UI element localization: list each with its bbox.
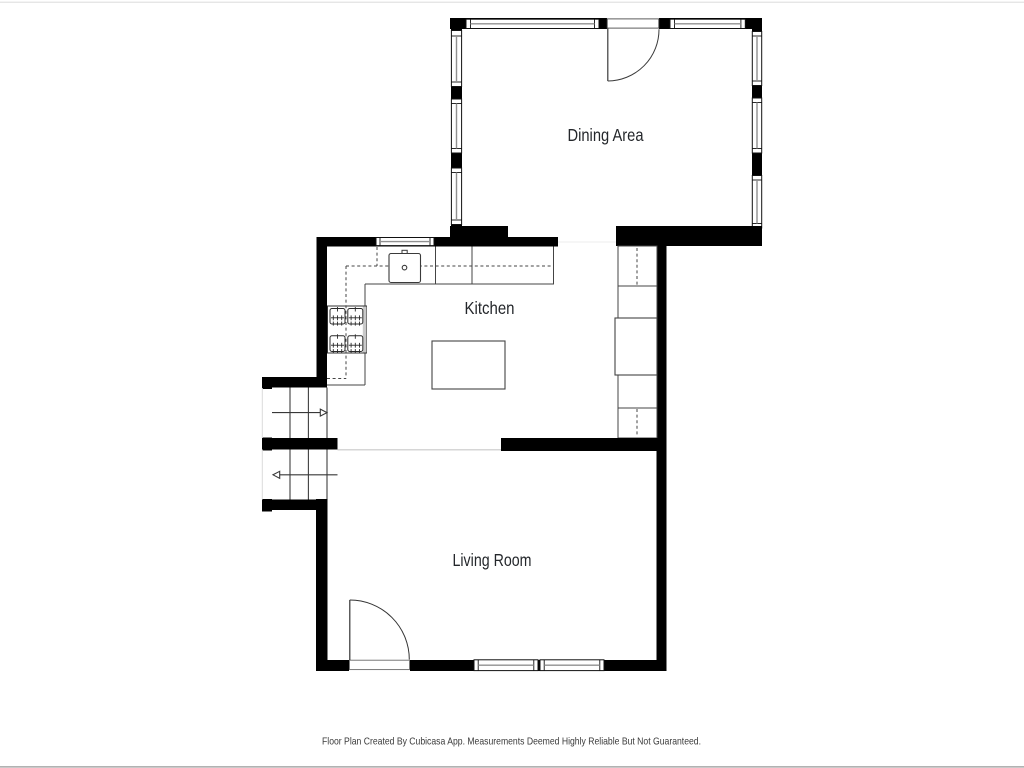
svg-text:Kitchen: Kitchen bbox=[465, 298, 515, 318]
svg-text:Dining Area: Dining Area bbox=[568, 125, 644, 145]
svg-text:Living Room: Living Room bbox=[453, 550, 532, 570]
svg-text:Floor Plan Created By Cubicasa: Floor Plan Created By Cubicasa App. Meas… bbox=[322, 737, 701, 748]
